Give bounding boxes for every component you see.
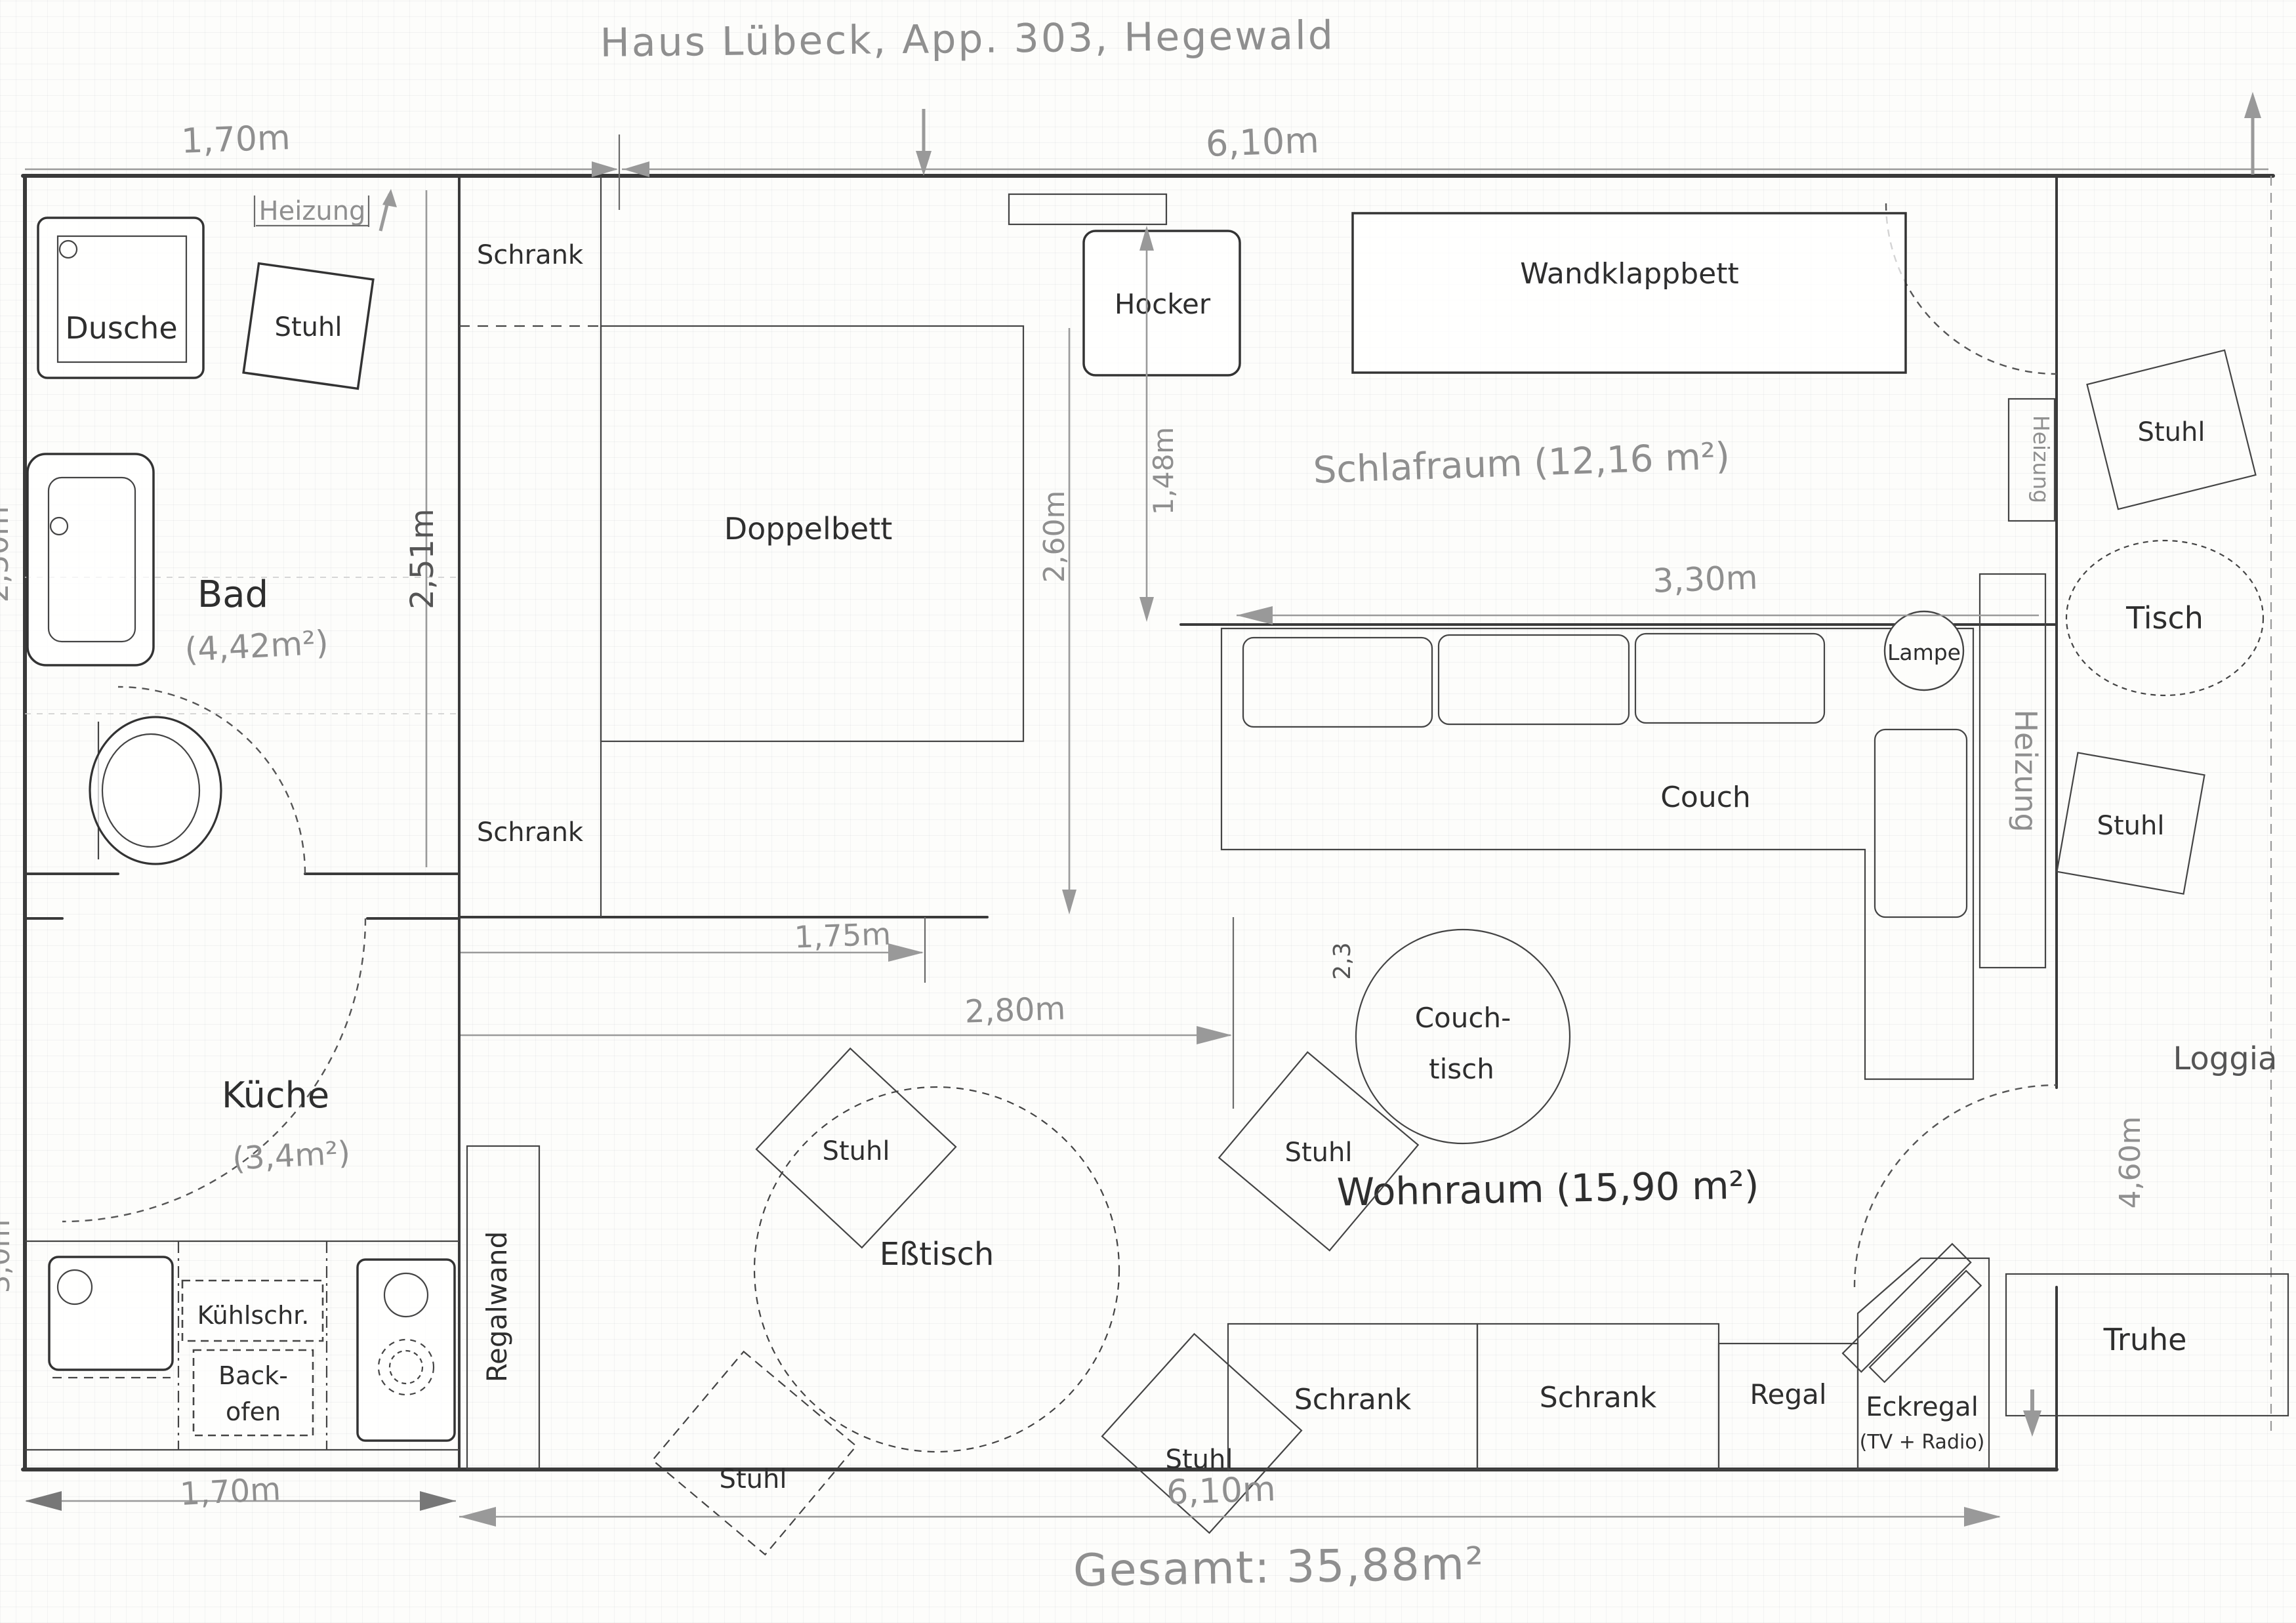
dim-arrow-330-icon bbox=[1237, 606, 1273, 625]
couch-cushion-1 bbox=[1243, 638, 1432, 727]
couch-cushion-2 bbox=[1439, 635, 1629, 724]
toilet-outer bbox=[90, 717, 221, 864]
label-tisch: Tisch bbox=[2125, 600, 2204, 636]
dim-bottom-left: 1,70m bbox=[179, 1471, 281, 1513]
dining-area: Eßtisch Stuhl Stuhl Stuhl Stuhl Regalwan… bbox=[467, 1048, 1418, 1555]
scanned-floorplan-page: Dusche Stuhl Heizung Bad (4,42m²) Küche … bbox=[0, 0, 2296, 1623]
wall-shelf bbox=[1009, 194, 1166, 224]
label-schrank-top: Schrank bbox=[477, 240, 584, 270]
dim-dining-2: 2,80m bbox=[964, 990, 1067, 1030]
total-area: Gesamt: 35,88m² bbox=[1073, 1538, 1485, 1597]
label-kueche: Küche bbox=[222, 1075, 329, 1116]
dim-dining-1: 1,75m bbox=[794, 916, 892, 955]
top-mid-arrow-icon bbox=[916, 151, 932, 176]
label-schrank-mid: Schrank bbox=[477, 817, 584, 848]
tv-on-corner-shelf bbox=[1843, 1244, 1988, 1389]
wall-fold-bed bbox=[1353, 213, 1906, 373]
label-couchtisch-1: Couch- bbox=[1415, 1002, 1511, 1034]
label-stuhl-loggia-2: Stuhl bbox=[2097, 811, 2165, 841]
floorplan-canvas: Dusche Stuhl Heizung Bad (4,42m²) Küche … bbox=[0, 0, 2296, 1623]
label-heizung-wohnraum: Heizung bbox=[2008, 709, 2043, 832]
label-schlafraum: Schlafraum (12,16 m²) bbox=[1313, 435, 1731, 492]
label-kueche-area: (3,4m²) bbox=[232, 1134, 351, 1177]
dim-schlafraum-width: 3,30m bbox=[1652, 558, 1758, 600]
label-heizung-schlafraum: Heizung bbox=[2028, 415, 2054, 503]
kitchen-sink-unit bbox=[49, 1257, 173, 1370]
label-lampe: Lampe bbox=[1887, 640, 1961, 665]
label-eckregal: Eckregal bbox=[1866, 1392, 1978, 1422]
label-stuhl-dining-tl: Stuhl bbox=[823, 1136, 890, 1166]
coffee-table-circle bbox=[1356, 930, 1570, 1143]
dim-bett-depth: 2,60m bbox=[1038, 491, 1071, 583]
truhe-arrow-icon bbox=[2023, 1410, 2041, 1437]
kitchen: Küche (3,4m²) Kühlschr. Back- ofen bbox=[49, 1075, 455, 1450]
dim-hocker-gap: 1,48m bbox=[1147, 427, 1179, 515]
label-regalwand: Regalwand bbox=[481, 1231, 513, 1383]
label-stuhl-dining-br: Stuhl bbox=[1166, 1445, 1233, 1475]
bathroom-fixtures: Dusche Stuhl Heizung Bad (4,42m²) bbox=[28, 189, 397, 864]
label-bad: Bad bbox=[197, 573, 268, 616]
label-schrank-2: Schrank bbox=[1540, 1381, 1657, 1414]
label-backofen-2: ofen bbox=[226, 1397, 281, 1426]
label-stuhl-bad: Stuhl bbox=[275, 312, 342, 342]
dim-arrow-175-icon bbox=[888, 943, 924, 962]
label-bad-area: (4,42m²) bbox=[184, 623, 329, 668]
dim-top-right: 6,10m bbox=[1205, 119, 1320, 165]
dim-left-edge-lower: 3,0m bbox=[0, 1220, 16, 1294]
top-right-arrow-icon bbox=[2244, 92, 2261, 118]
label-stuhl-dining-tr: Stuhl bbox=[1285, 1138, 1353, 1168]
dim-bottom-right: 6,10m bbox=[1166, 1469, 1276, 1513]
label-stuhl-dining-bl: Stuhl bbox=[720, 1464, 787, 1494]
label-kuehlschrank: Kühlschr. bbox=[197, 1301, 310, 1330]
label-loggia: Loggia bbox=[2173, 1040, 2278, 1077]
label-couch: Couch bbox=[1660, 781, 1751, 814]
sleeping-area: Schrank Schrank Doppelbett Hocker Wandkl… bbox=[477, 194, 1906, 848]
label-heizung-top: Heizung bbox=[259, 196, 366, 226]
door-arc-schlafraum-loggia bbox=[1886, 203, 2057, 374]
label-stuhl-loggia-1: Stuhl bbox=[2138, 417, 2205, 447]
dim-arrow-260-icon bbox=[1062, 890, 1076, 914]
dim-arrow-bl-left-icon bbox=[25, 1491, 62, 1511]
dim-top-left: 1,70m bbox=[180, 118, 291, 161]
label-couchtisch-2: tisch bbox=[1429, 1053, 1494, 1085]
dim-left-edge-upper: 2,50m bbox=[0, 506, 15, 602]
label-doppelbett: Doppelbett bbox=[724, 511, 893, 546]
living-area: Couch Lampe Couch- tisch 2,3 Wohnraum (1… bbox=[1221, 399, 2055, 1215]
label-hocker: Hocker bbox=[1115, 288, 1211, 320]
couch-cushion-3 bbox=[1635, 634, 1824, 723]
dim-schrank-column: 2,51m bbox=[404, 508, 441, 609]
loggia: Stuhl Tisch Stuhl Loggia 4,60m Truhe bbox=[2006, 350, 2288, 1437]
dim-arrow-br-left-icon bbox=[459, 1507, 496, 1527]
label-backofen-1: Back- bbox=[218, 1361, 288, 1390]
label-wohnraum: Wohnraum (15,90 m²) bbox=[1336, 1162, 1759, 1214]
door-arc-wohnraum-loggia bbox=[1855, 1085, 2057, 1287]
label-eckregal-sub: (TV + Radio) bbox=[1860, 1431, 1985, 1454]
page-title: Haus Lübeck, App. 303, Hegewald bbox=[600, 12, 1335, 66]
dim-arrow-280-icon bbox=[1197, 1026, 1232, 1044]
annotation-2-3: 2,3 bbox=[1329, 942, 1356, 979]
label-truhe: Truhe bbox=[2103, 1322, 2187, 1357]
couch-cushion-4 bbox=[1875, 729, 1967, 917]
chair-dining-bl bbox=[653, 1351, 856, 1554]
dim-arrow-148-bottom-icon bbox=[1139, 597, 1154, 622]
heizung-arrow-icon bbox=[382, 189, 397, 207]
label-dusche: Dusche bbox=[65, 310, 177, 346]
label-wandklappbett: Wandklappbett bbox=[1520, 257, 1739, 291]
door-arc-kueche bbox=[62, 918, 365, 1222]
dim-arrow-br-right-icon bbox=[1964, 1507, 2001, 1527]
label-esstisch: Eßtisch bbox=[880, 1236, 994, 1273]
label-regal: Regal bbox=[1750, 1378, 1826, 1410]
couch-outline bbox=[1221, 628, 1973, 1079]
dim-arrow-bl-right-icon bbox=[420, 1491, 456, 1511]
label-schrank-1: Schrank bbox=[1294, 1383, 1412, 1416]
dim-loggia-height: 4,60m bbox=[2114, 1117, 2147, 1209]
bottom-furniture-row: Schrank Schrank Regal Eckregal (TV + Rad… bbox=[1228, 1244, 1989, 1469]
